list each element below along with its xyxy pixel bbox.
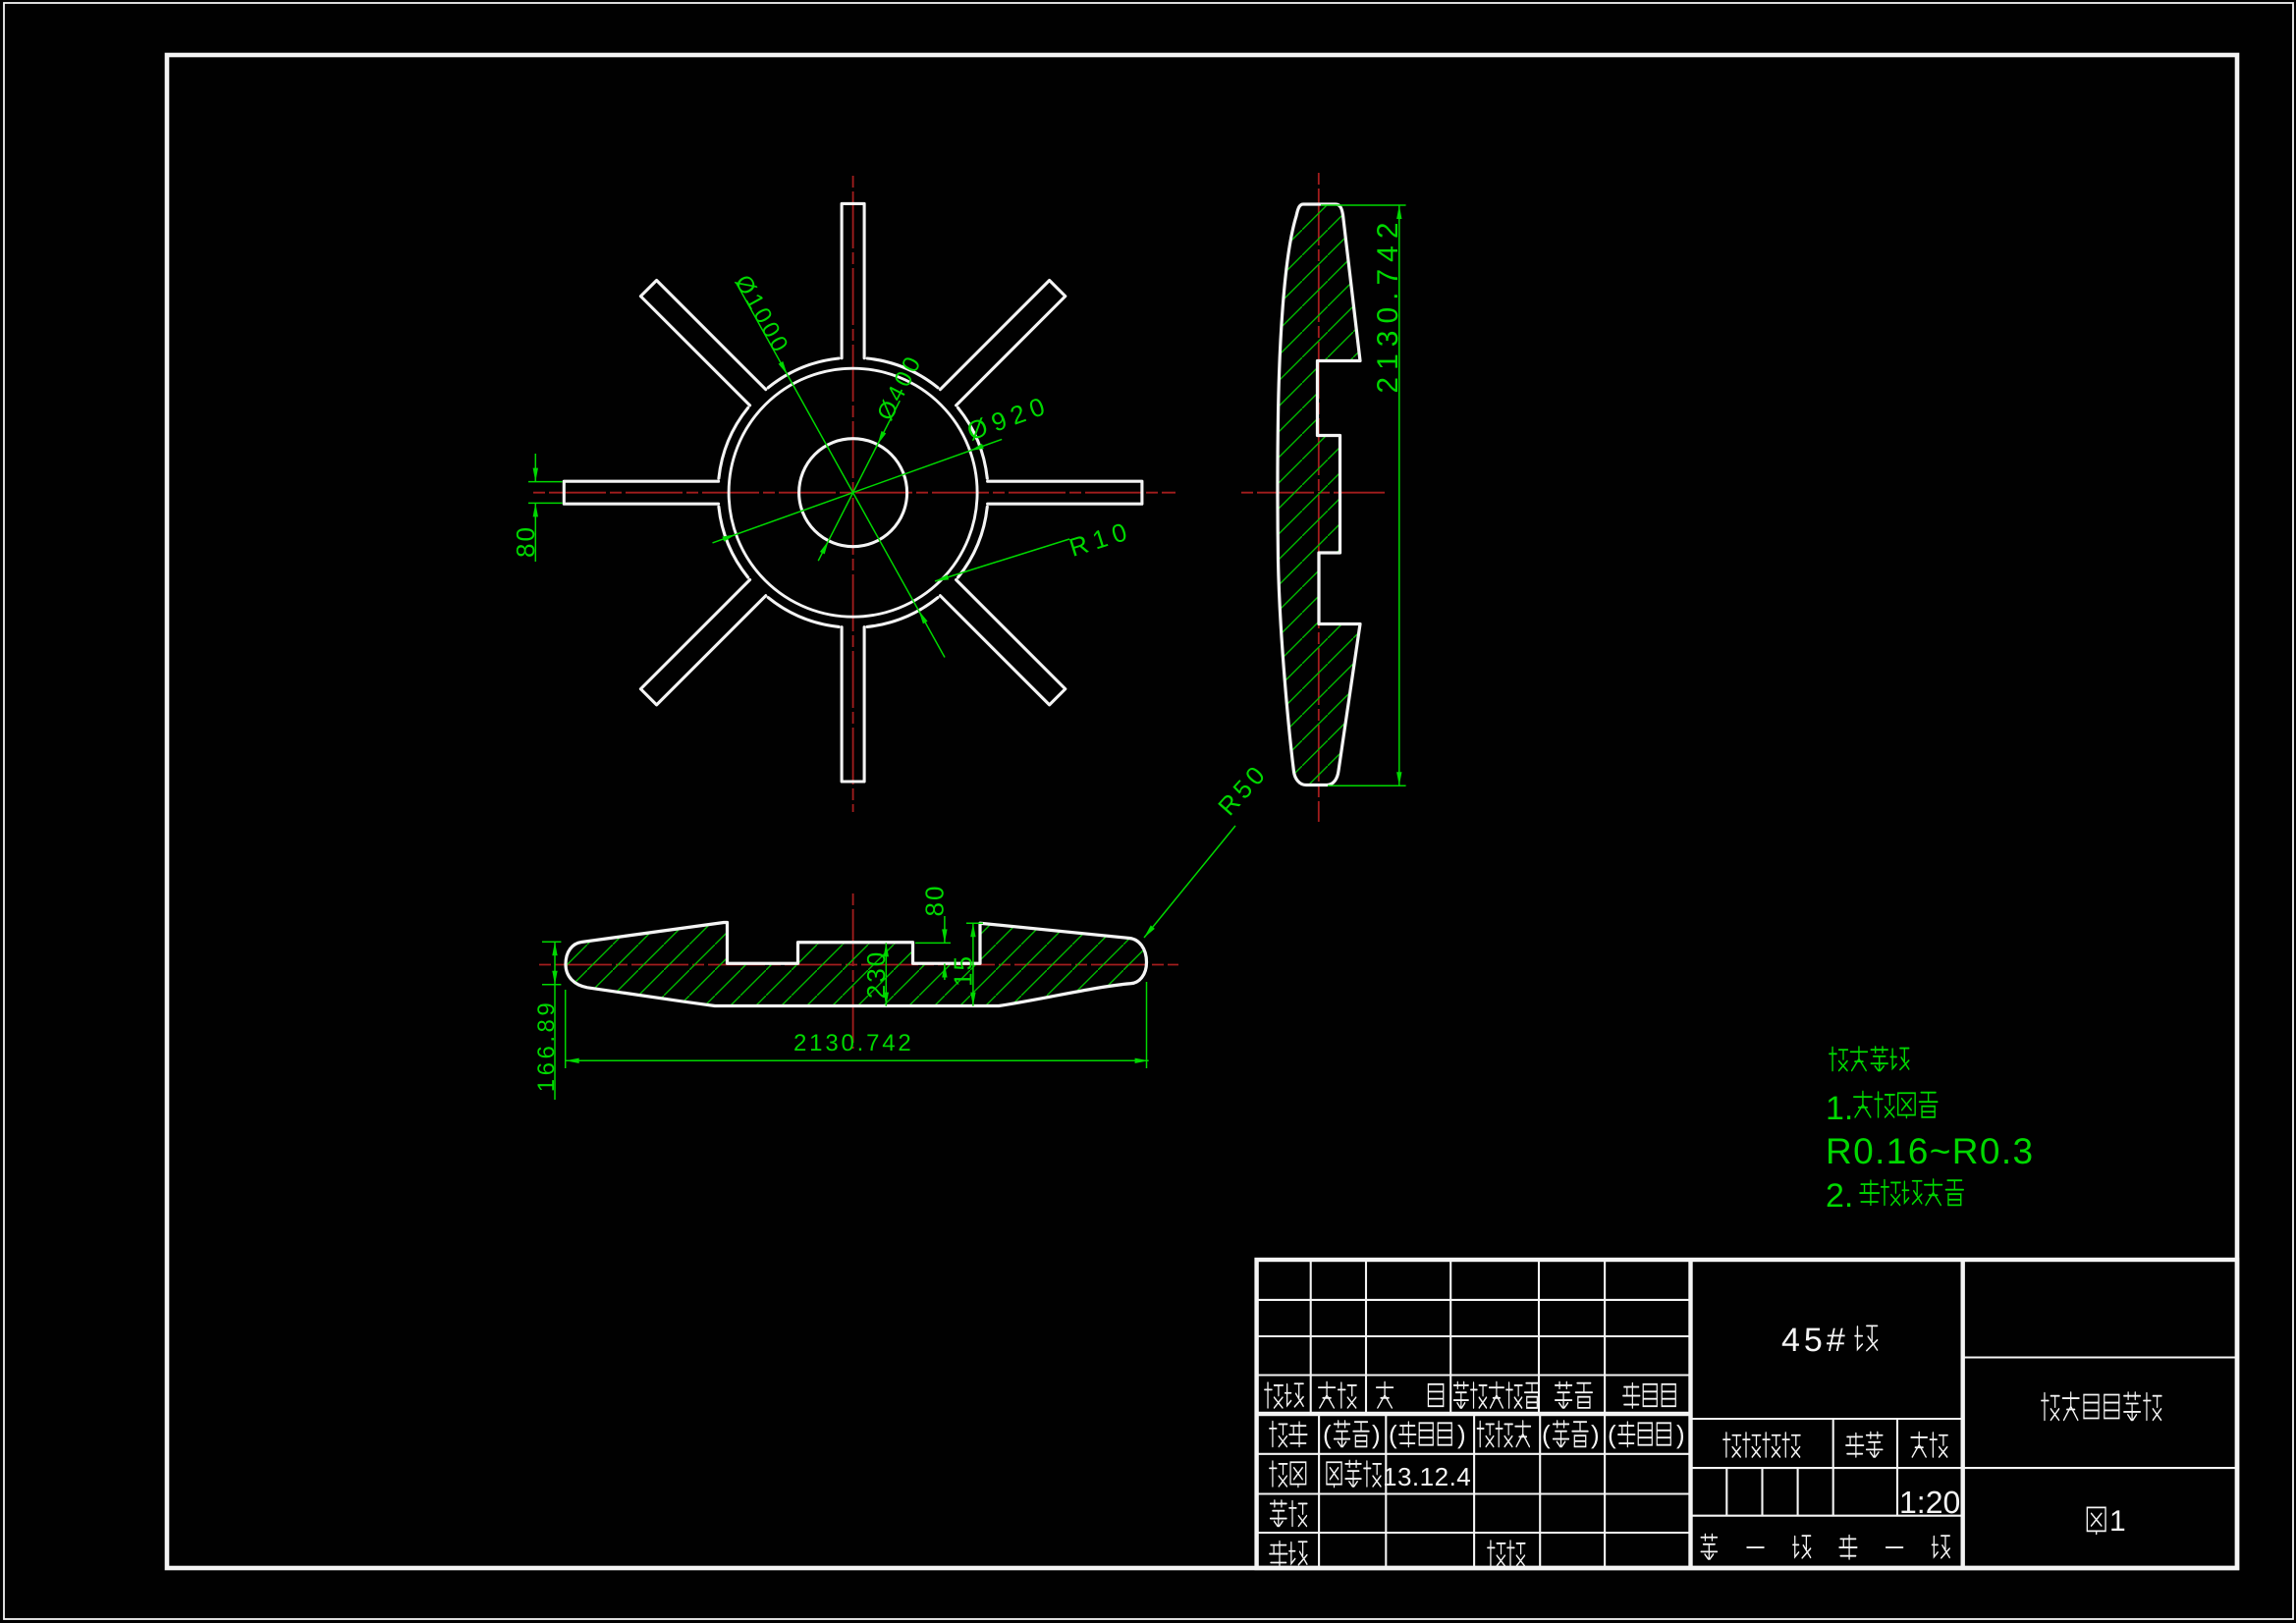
- svg-text:80: 80: [511, 525, 540, 558]
- svg-text:R0.16~R0.3: R0.16~R0.3: [1826, 1131, 2035, 1171]
- svg-text:1: 1: [2109, 1505, 2126, 1538]
- svg-text:2130.742: 2130.742: [1372, 215, 1404, 393]
- svg-text:): ): [1372, 1420, 1381, 1449]
- svg-text:1.: 1.: [1826, 1090, 1853, 1127]
- svg-text:13.12.4: 13.12.4: [1383, 1462, 1471, 1491]
- svg-text:15: 15: [949, 954, 978, 987]
- svg-text:(: (: [1323, 1420, 1332, 1449]
- svg-text:230: 230: [861, 950, 891, 999]
- svg-text:45#: 45#: [1781, 1322, 1849, 1359]
- svg-text:(: (: [1542, 1420, 1551, 1449]
- svg-text:(: (: [1608, 1420, 1616, 1449]
- svg-text:1:20: 1:20: [1899, 1485, 1960, 1520]
- svg-text:166.89: 166.89: [533, 1000, 560, 1092]
- svg-text:80: 80: [920, 885, 950, 917]
- svg-text:): ): [1457, 1420, 1466, 1449]
- svg-text:2.: 2.: [1826, 1177, 1853, 1215]
- svg-text:): ): [1591, 1420, 1600, 1449]
- svg-text:): ): [1676, 1420, 1685, 1449]
- svg-text:2130.742: 2130.742: [793, 1030, 914, 1056]
- svg-text:(: (: [1389, 1420, 1397, 1449]
